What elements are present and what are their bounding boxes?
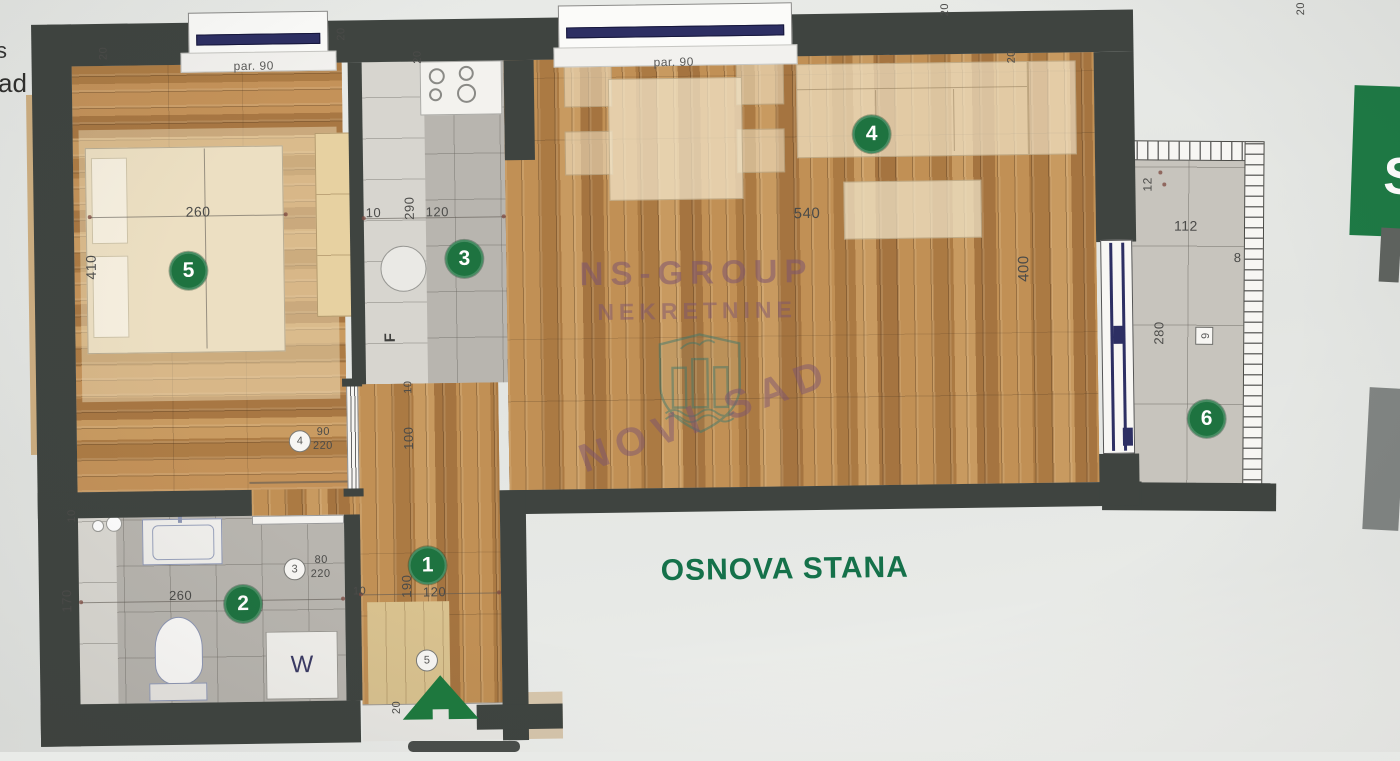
sliding-door-bedroom [346, 384, 359, 490]
terrace-door-marker-box: 6 [1195, 327, 1213, 345]
fridge-label: F [383, 332, 398, 342]
dim-hall-length: 190 [400, 575, 413, 598]
burner [459, 66, 474, 81]
terrace-floor [1130, 160, 1246, 483]
wall-right-upper [1094, 52, 1137, 243]
wardrobe [315, 132, 354, 316]
dining-table [608, 77, 744, 201]
dim-kitchen-length: 290 [403, 196, 416, 219]
dim-dot [497, 590, 501, 594]
dim-entry-20: 20 [392, 701, 403, 714]
dim-dot [1162, 183, 1166, 187]
dim-living-width: 540 [794, 206, 821, 221]
sofa-back-line [797, 86, 1027, 90]
stove [420, 60, 503, 115]
sofa-chaise [1028, 60, 1077, 155]
dim-kitchen-width: 120 [426, 205, 449, 218]
window-glazing [566, 24, 784, 38]
bathroom-shower-zone [78, 518, 119, 705]
dim-bedroom-door-h: 220 [313, 441, 333, 452]
burner [457, 84, 476, 103]
door-track-cap [344, 488, 364, 496]
watermark-type: NEKRETNINE [547, 298, 847, 325]
door-glazing-line [1109, 243, 1115, 451]
dining-chair [736, 60, 785, 105]
sofa [796, 61, 1029, 158]
wall-top-kitchen [327, 18, 561, 63]
coffee-table [843, 180, 982, 240]
shower-mixer [92, 520, 104, 532]
wall-kitchen-right-stub [504, 60, 535, 160]
dim-bath-offset: 10 [67, 509, 78, 522]
burner [429, 88, 442, 101]
dim-dot [502, 214, 506, 218]
pillow [91, 158, 128, 244]
dim-hall-offset: 10 [353, 586, 366, 597]
window-label-bedroom: par. 90 [234, 60, 274, 73]
dim-bedroom-door-w: 90 [317, 427, 330, 438]
dim-hall-width: 120 [423, 585, 446, 598]
dim-terrace-rail: 12 [1141, 177, 1153, 191]
dim-dot [88, 215, 92, 219]
dim-hall-corridor: 100 [402, 426, 415, 449]
entrance-arrow-notch [433, 709, 449, 720]
dim-bedroom-length: 410 [84, 255, 98, 280]
dim-terrace-edge: 8 [1234, 251, 1242, 264]
washing-machine: W [266, 631, 339, 700]
dim-wall-20: 20 [940, 3, 951, 16]
terrace-railing-right [1242, 141, 1265, 501]
dim-bedroom-width: 260 [186, 204, 211, 218]
door-track-cap [342, 378, 362, 386]
door-marker-num: 5 [424, 654, 430, 666]
dim-hall-corridor-offset: 10 [403, 380, 414, 393]
dim-wall-20: 20 [1296, 2, 1307, 15]
terrace-door-marker: 6 [1198, 333, 1210, 339]
dim-terrace-width: 112 [1174, 219, 1198, 233]
terrace-railing-top [1126, 140, 1262, 161]
sink-basin [152, 524, 214, 560]
dim-bath-door-h: 220 [311, 569, 331, 580]
door-glazing-line [1121, 243, 1127, 451]
wall-hallway-right [500, 490, 529, 740]
dim-dot [1158, 170, 1162, 174]
bathroom-sink [142, 518, 223, 565]
dining-chair [564, 63, 613, 108]
burner [429, 68, 445, 84]
dim-dot [284, 212, 288, 216]
toilet [154, 617, 203, 686]
dining-chair [565, 131, 614, 176]
dim-bath-depth: 170 [60, 589, 73, 612]
dim-terrace-depth: 280 [1152, 321, 1165, 344]
dim-wall-20: 20 [1007, 50, 1018, 63]
dim-wall-20: 20 [336, 27, 347, 40]
wall-right-lower [1099, 453, 1140, 506]
toilet-tank [149, 683, 207, 702]
dim-wall-20: 20 [98, 47, 109, 60]
bedroom-window [188, 11, 329, 57]
wall-bathroom-bottom [41, 700, 362, 746]
window-label-living: par. 90 [654, 56, 694, 69]
washer-label: W [290, 651, 313, 679]
apartment-floor-plan: W 12 112 8 280 6 6 [0, 0, 1400, 761]
dim-dot [79, 600, 83, 604]
bathroom-door-leaf [252, 515, 344, 525]
window-glazing [196, 33, 320, 46]
wall-bathroom-right [344, 514, 363, 700]
watermark-company: NS-GROUP [546, 254, 846, 291]
dim-kitchen-offset: 10 [366, 206, 382, 219]
dim-wall-20: 20 [413, 50, 424, 63]
wall-top-living [790, 10, 1134, 57]
door-marker-num: 3 [292, 563, 298, 575]
page-title: OSNOVA STANA [660, 551, 909, 588]
dining-chair [737, 128, 786, 173]
wall-entry-foot [477, 704, 563, 730]
sliding-door-terrace [1100, 240, 1135, 454]
dim-bath-width: 260 [169, 589, 192, 602]
sofa-seam [953, 89, 955, 151]
dim-living-length: 400 [1016, 255, 1031, 282]
dim-dot [341, 597, 345, 601]
door-handle-block [1113, 326, 1123, 344]
shower-mixer [106, 516, 122, 532]
door-handle-block [1123, 428, 1133, 446]
dim-bath-door-w: 80 [314, 555, 327, 566]
door-marker-num: 4 [297, 435, 303, 447]
floor-plan-photo: { "title": "OSNOVA STANA", "watermark": … [0, 0, 1400, 752]
room-badge-terrace: 6 [1188, 400, 1226, 438]
